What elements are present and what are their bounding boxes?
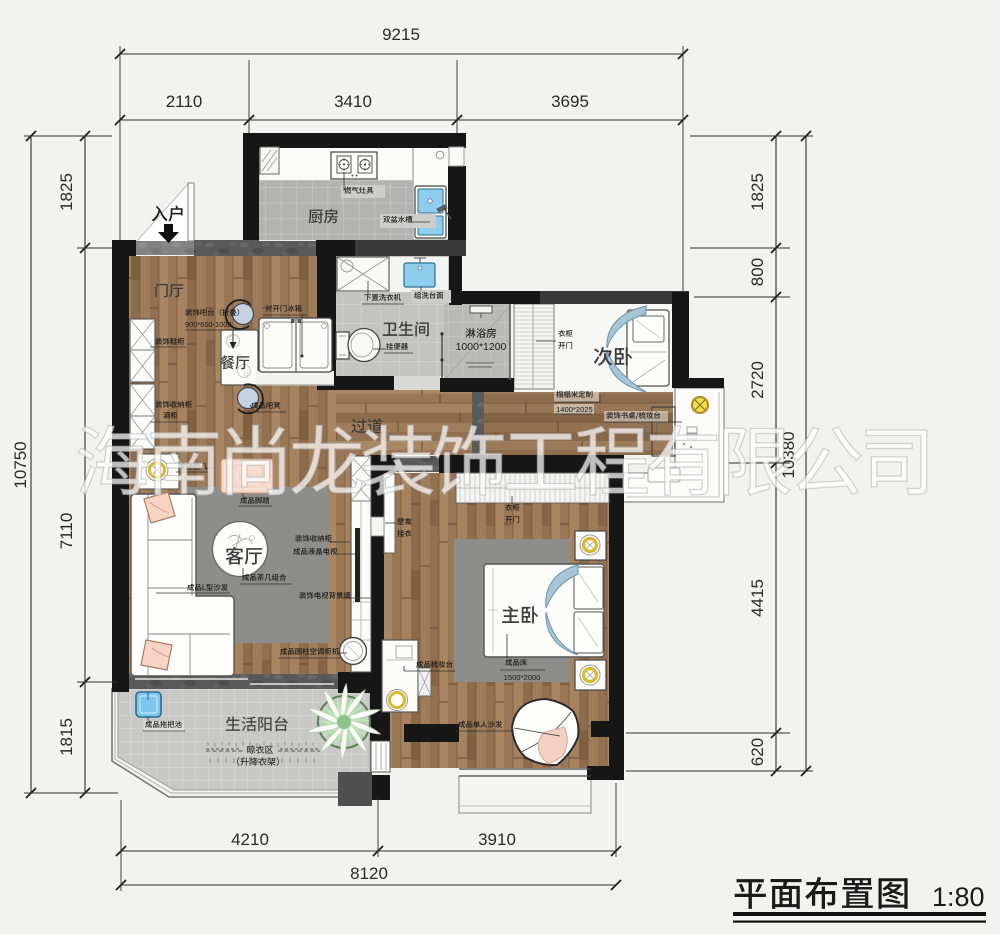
- svg-text:3410: 3410: [334, 92, 372, 111]
- svg-text:7110: 7110: [57, 513, 76, 550]
- svg-text:8120: 8120: [350, 864, 388, 883]
- svg-text:1400*2025: 1400*2025: [556, 405, 593, 414]
- svg-text:3695: 3695: [551, 92, 589, 111]
- svg-text:1815: 1815: [57, 718, 76, 756]
- svg-text:2720: 2720: [748, 361, 767, 399]
- svg-text:1500*2000: 1500*2000: [504, 673, 541, 682]
- svg-text:9215: 9215: [382, 25, 420, 44]
- svg-text:4210: 4210: [231, 830, 269, 849]
- svg-text:1:80: 1:80: [932, 882, 985, 912]
- svg-text:1825: 1825: [748, 173, 767, 211]
- svg-text:900*600-1000: 900*600-1000: [185, 320, 231, 329]
- svg-text:2110: 2110: [166, 92, 203, 111]
- svg-text:1000*1200: 1000*1200: [456, 341, 507, 353]
- svg-text:3910: 3910: [478, 830, 516, 849]
- svg-text:1825: 1825: [57, 173, 76, 211]
- svg-text:4415: 4415: [748, 579, 767, 617]
- svg-text:10750: 10750: [11, 441, 30, 488]
- svg-text:620: 620: [748, 738, 767, 766]
- svg-text:800: 800: [748, 258, 767, 286]
